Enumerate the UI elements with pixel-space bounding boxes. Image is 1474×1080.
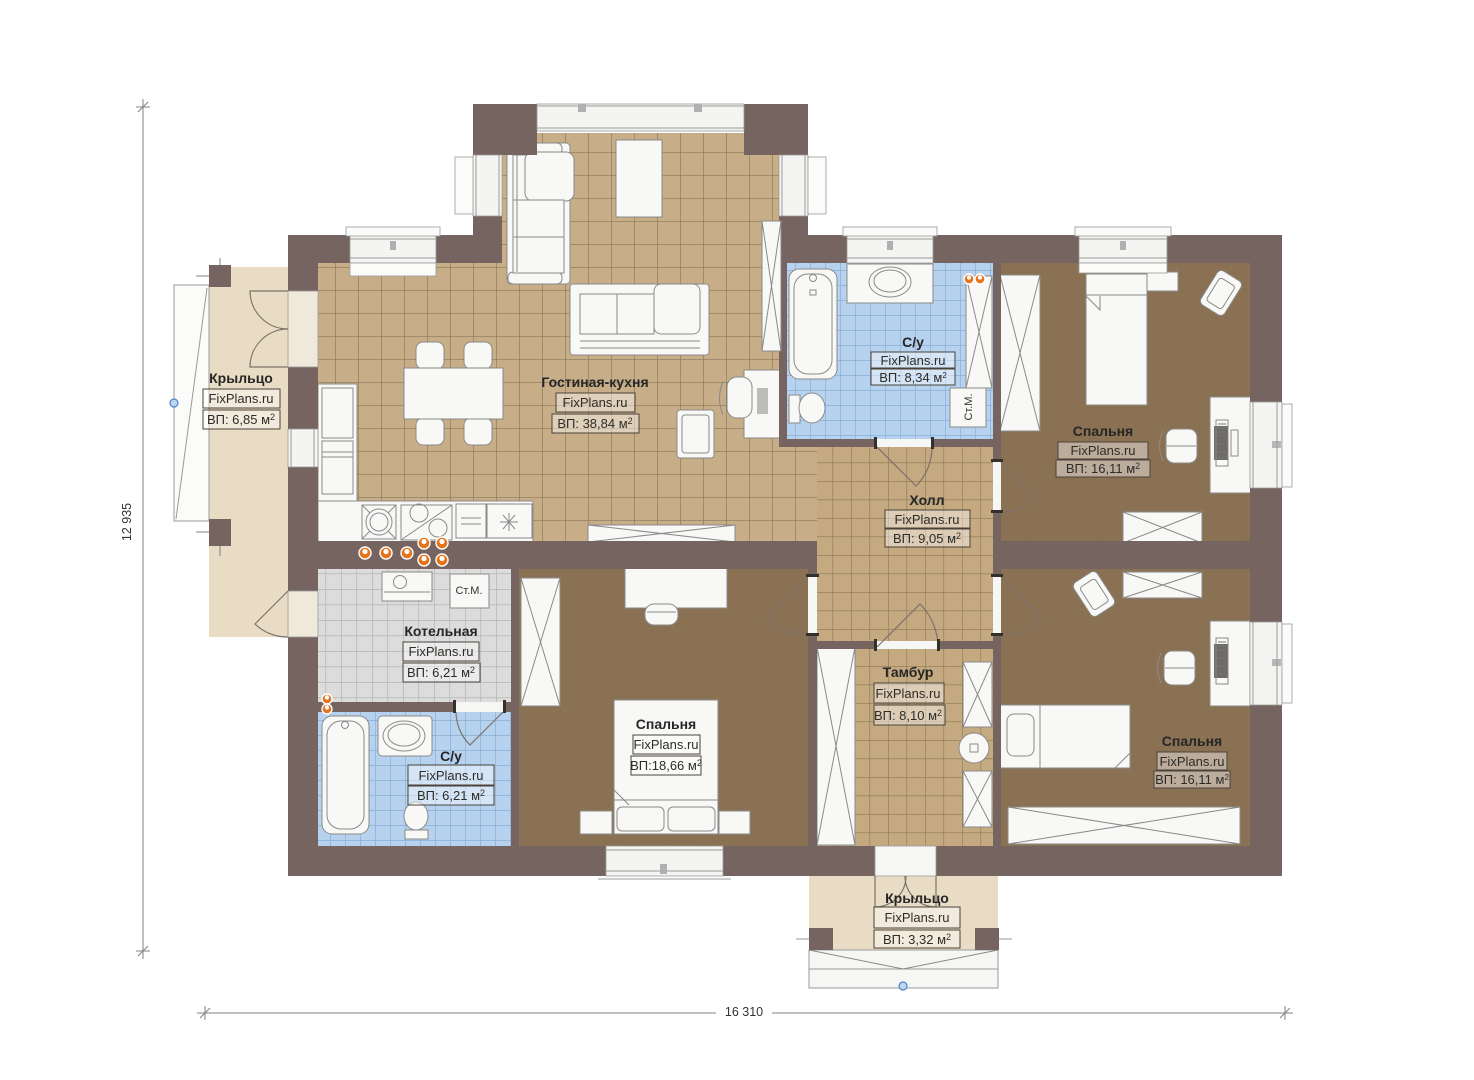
- svg-text:FixPlans.ru: FixPlans.ru: [408, 644, 473, 659]
- svg-text:Спальня: Спальня: [1162, 733, 1222, 749]
- svg-text:Тамбур: Тамбур: [883, 664, 934, 680]
- svg-text:ВП: 8,34 м2: ВП: 8,34 м2: [879, 370, 947, 385]
- svg-text:Спальня: Спальня: [1073, 423, 1133, 439]
- svg-text:FixPlans.ru: FixPlans.ru: [418, 768, 483, 783]
- svg-text:ВП: 6,85 м2: ВП: 6,85 м2: [207, 412, 275, 427]
- svg-text:Холл: Холл: [909, 492, 944, 508]
- svg-text:FixPlans.ru: FixPlans.ru: [633, 737, 698, 752]
- svg-text:Ст.М.: Ст.М.: [963, 393, 975, 420]
- svg-text:ВП: 8,10 м2: ВП: 8,10 м2: [874, 708, 942, 723]
- svg-text:ВП: 16,11 м2: ВП: 16,11 м2: [1066, 461, 1140, 476]
- svg-text:FixPlans.ru: FixPlans.ru: [1159, 754, 1224, 769]
- svg-text:FixPlans.ru: FixPlans.ru: [1070, 443, 1135, 458]
- svg-text:Спальня: Спальня: [636, 716, 696, 732]
- svg-text:FixPlans.ru: FixPlans.ru: [884, 910, 949, 925]
- svg-text:FixPlans.ru: FixPlans.ru: [875, 686, 940, 701]
- svg-text:FixPlans.ru: FixPlans.ru: [894, 512, 959, 527]
- svg-text:FixPlans.ru: FixPlans.ru: [208, 391, 273, 406]
- svg-text:ВП: 38,84 м2: ВП: 38,84 м2: [557, 416, 632, 431]
- svg-text:ВП: 6,21 м2: ВП: 6,21 м2: [417, 788, 485, 803]
- svg-text:С/у: С/у: [902, 334, 924, 350]
- svg-text:FixPlans.ru: FixPlans.ru: [880, 353, 945, 368]
- svg-text:ВП: 16,11 м2: ВП: 16,11 м2: [1155, 772, 1229, 787]
- svg-text:Крыльцо: Крыльцо: [209, 370, 273, 386]
- svg-text:ВП: 9,05 м2: ВП: 9,05 м2: [893, 531, 961, 546]
- svg-text:С/у: С/у: [440, 748, 462, 764]
- svg-text:ВП: 6,21 м2: ВП: 6,21 м2: [407, 665, 475, 680]
- svg-text:Гостиная-кухня: Гостиная-кухня: [541, 374, 648, 390]
- svg-text:ВП: 3,32 м2: ВП: 3,32 м2: [883, 932, 951, 947]
- svg-text:ВП:18,66 м2: ВП:18,66 м2: [630, 758, 702, 773]
- svg-text:Крыльцо: Крыльцо: [885, 890, 949, 906]
- svg-text:FixPlans.ru: FixPlans.ru: [562, 395, 627, 410]
- svg-text:12 935: 12 935: [120, 503, 134, 541]
- svg-text:16 310: 16 310: [725, 1005, 763, 1019]
- svg-text:Ст.М.: Ст.М.: [455, 585, 482, 597]
- svg-text:Котельная: Котельная: [404, 623, 477, 639]
